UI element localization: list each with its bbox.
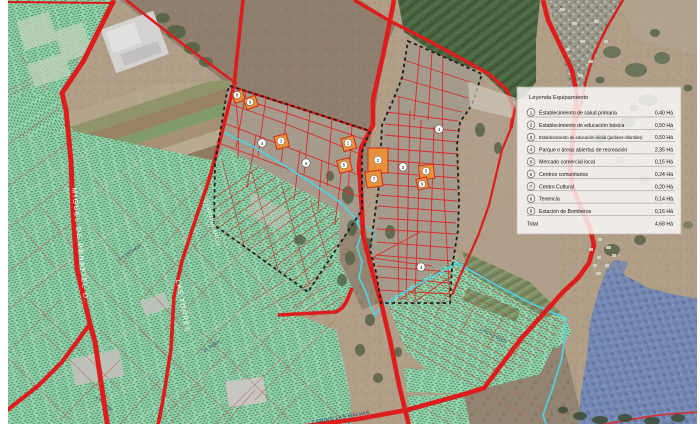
svg-text:Estación de Bomberos: Estación de Bomberos	[539, 209, 592, 215]
svg-text:0,16 Há: 0,16 Há	[655, 209, 673, 215]
svg-text:4: 4	[438, 127, 441, 132]
svg-text:Total: Total	[527, 222, 538, 228]
svg-text:Leyenda Equipamiento: Leyenda Equipamiento	[529, 95, 588, 101]
svg-text:0,40 Há: 0,40 Há	[655, 111, 673, 117]
svg-text:6: 6	[305, 161, 308, 166]
svg-text:0,50 Há: 0,50 Há	[655, 123, 673, 129]
svg-text:Parque o áreas abiertas de rec: Parque o áreas abiertas de recreación	[539, 147, 627, 153]
svg-text:Tenencia: Tenencia	[539, 197, 560, 203]
svg-text:Centro Cultural: Centro Cultural	[539, 184, 574, 190]
svg-text:Establecimiento de educación i: Establecimiento de educación inicial (ja…	[539, 135, 643, 140]
svg-text:0,50 Há: 0,50 Há	[655, 135, 673, 141]
svg-text:0,24 Há: 0,24 Há	[655, 172, 673, 178]
svg-text:6: 6	[402, 165, 405, 170]
svg-text:0,15 Há: 0,15 Há	[655, 160, 673, 166]
svg-text:Establecimiento de salud prima: Establecimiento de salud primaria	[539, 111, 617, 117]
svg-text:4: 4	[420, 265, 423, 270]
svg-text:4: 4	[261, 141, 264, 146]
svg-text:2,35 Há: 2,35 Há	[655, 147, 673, 153]
svg-text:Establecimiento de educación b: Establecimiento de educación básica	[539, 123, 624, 129]
svg-text:Centros comunitarios: Centros comunitarios	[539, 172, 588, 178]
svg-text:0,14 Há: 0,14 Há	[655, 197, 673, 203]
svg-text:0,20 Há: 0,20 Há	[655, 184, 673, 190]
svg-text:4,68 Há: 4,68 Há	[655, 222, 673, 228]
svg-text:Mercado comercial local: Mercado comercial local	[539, 160, 595, 166]
